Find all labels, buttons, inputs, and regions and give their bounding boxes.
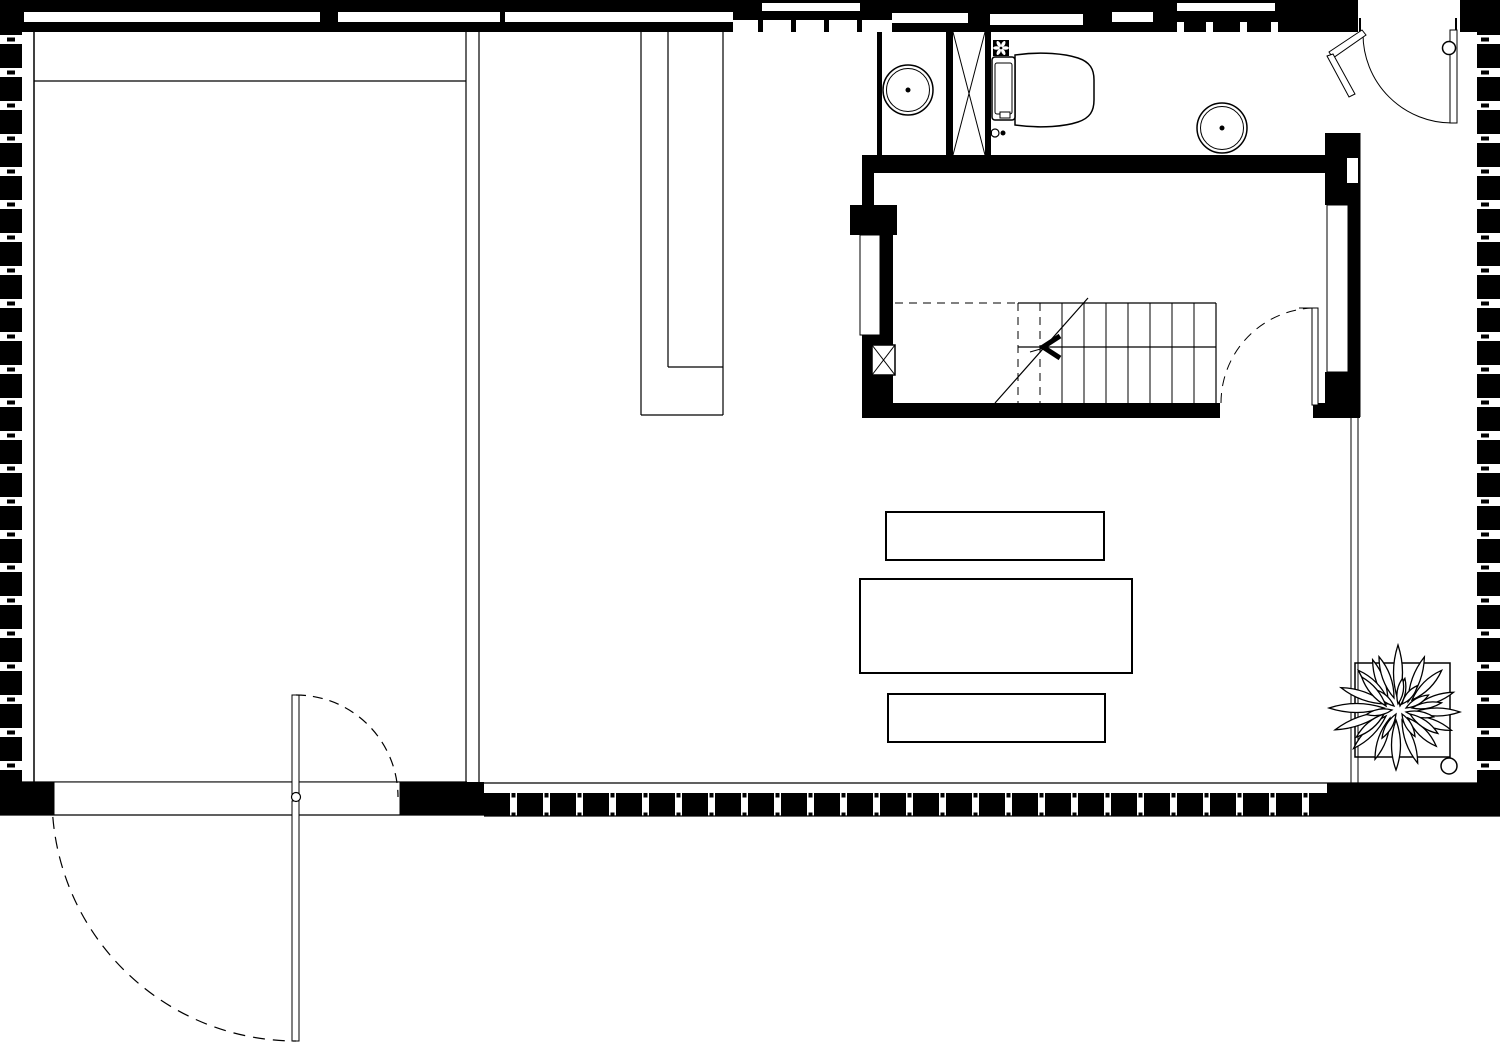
- window-3: [505, 12, 733, 22]
- valve-handle: [1001, 131, 1006, 136]
- stair-wall-right-bottom: [1325, 372, 1360, 417]
- washbasin-left-drain: [906, 88, 911, 93]
- shaft-left-wall: [946, 32, 953, 155]
- stair-wall-left: [862, 335, 893, 345]
- toilet-tank-inner: [995, 63, 1012, 114]
- toilet-bowl: [1015, 53, 1094, 127]
- window-4-lower: [733, 20, 892, 32]
- window-1: [24, 12, 320, 22]
- entry-door-opening: [1358, 0, 1460, 32]
- wall-bottom-main-hatch: [484, 793, 1327, 816]
- floor-plan-svg: [0, 0, 1500, 1042]
- window-8-slit: [1240, 22, 1247, 32]
- bathroom-left-wall: [877, 32, 882, 155]
- window-8-upper: [1177, 3, 1275, 11]
- window-8-slit: [1271, 22, 1278, 32]
- bench-upper: [886, 512, 1104, 560]
- dining-table: [860, 579, 1132, 673]
- stair-left-niche: [860, 235, 880, 335]
- stair-wall-left: [862, 173, 874, 205]
- gate-leaf-small: [292, 695, 299, 795]
- gate-leaf-large: [292, 801, 299, 1041]
- door-stop: [1441, 758, 1457, 774]
- stair-wall-left-block: [850, 205, 897, 235]
- wall-bottom-right-solid: [1327, 783, 1500, 816]
- window-4-mullion: [824, 19, 829, 32]
- window-8-slit: [1177, 22, 1184, 32]
- entry-door-knob: [1443, 42, 1456, 55]
- toilet-flush-button: [1000, 112, 1010, 118]
- window-4-mullion: [758, 19, 763, 32]
- stair-door-leaf: [1312, 308, 1318, 405]
- window-7: [1112, 12, 1153, 22]
- wall-bottom-left-block: [0, 782, 54, 815]
- stair-right-niche: [1327, 205, 1348, 372]
- valve-stem: [988, 131, 992, 135]
- wall-left-hatch: [0, 32, 22, 782]
- window-4-mullion: [857, 19, 862, 32]
- fan-blade: [1002, 46, 1009, 49]
- wall-right-hatch: [1477, 32, 1500, 816]
- bathroom-bottom-wall: [862, 155, 1360, 173]
- gate-pivot: [292, 793, 301, 802]
- bench-lower: [888, 694, 1105, 742]
- stair-wall-right-fill: [1348, 205, 1360, 372]
- entry-jamb-mark: [1359, 18, 1361, 32]
- wall-bottom-mid-block: [400, 782, 484, 815]
- window-8-slit: [1206, 22, 1213, 32]
- window-6: [990, 14, 1083, 25]
- stair-wall-bottom: [862, 403, 1220, 418]
- washbasin-right-drain: [1220, 126, 1225, 131]
- valve: [991, 129, 999, 137]
- window-4-mullion: [791, 19, 796, 32]
- floor-plan-page: [0, 0, 1500, 1042]
- fan-blade: [993, 46, 1000, 49]
- shaft-right-wall: [985, 32, 991, 155]
- window-5: [892, 13, 968, 23]
- window-2: [338, 12, 500, 22]
- stair-wall-left-fill: [880, 235, 893, 335]
- gate-opening-band: [54, 782, 400, 815]
- stair-wall-left: [862, 375, 893, 403]
- stair-wall-left: [862, 345, 872, 377]
- stair-wall-right-notch: [1347, 158, 1358, 183]
- window-4-upper: [762, 3, 860, 11]
